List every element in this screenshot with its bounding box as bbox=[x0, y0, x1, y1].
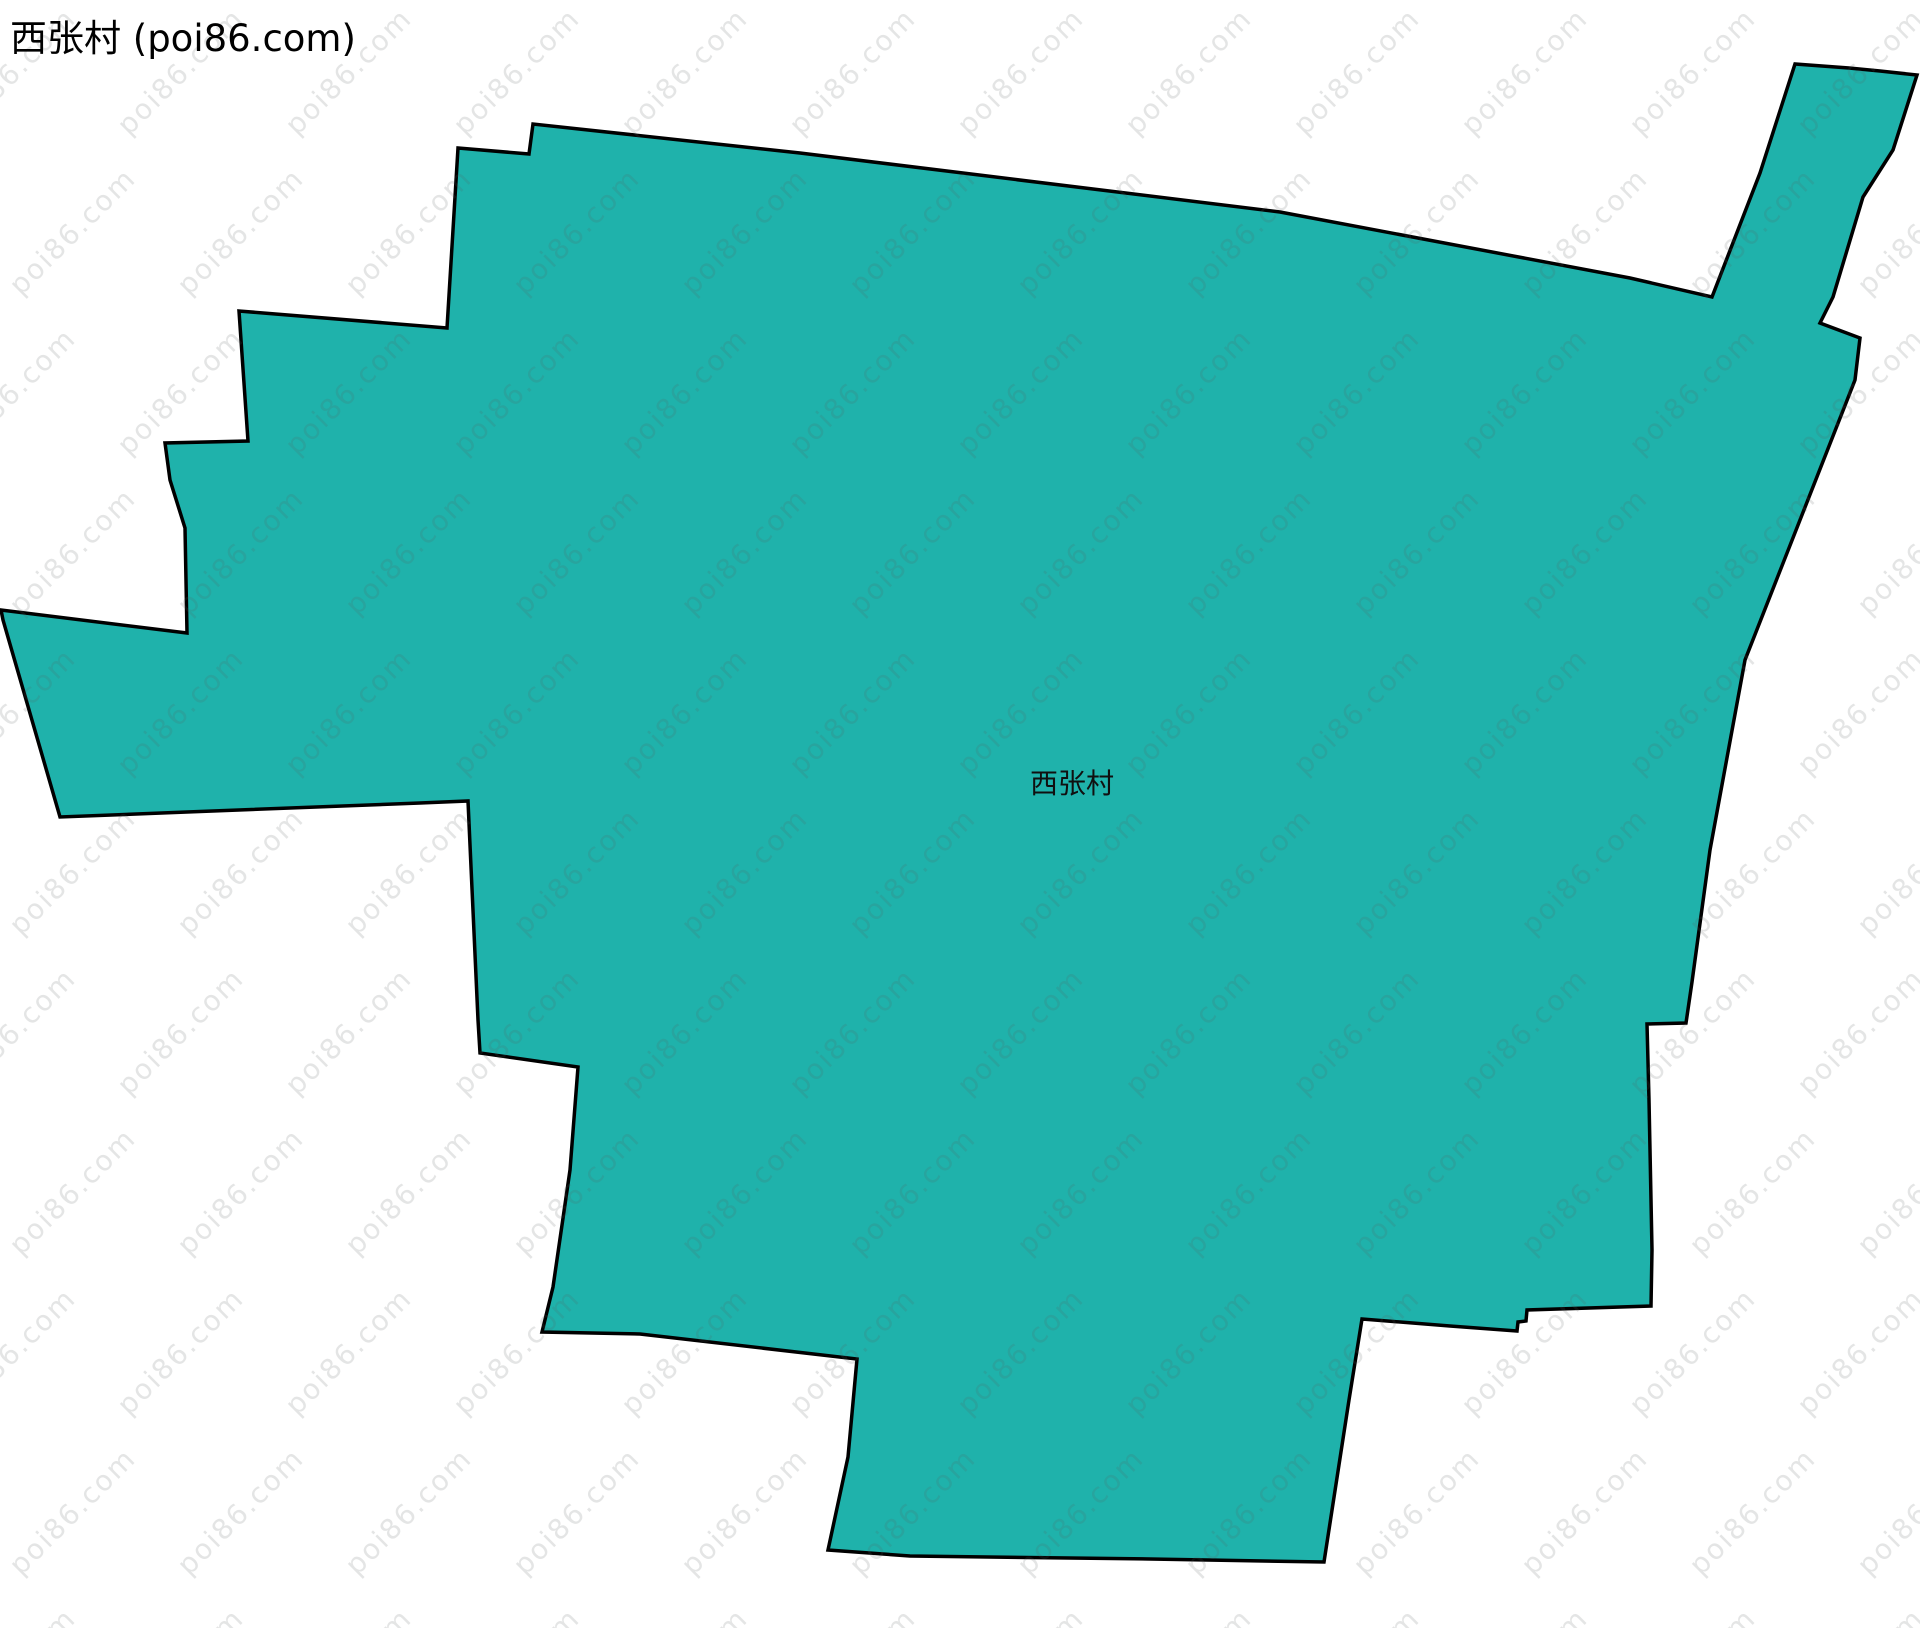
region-polygon bbox=[1, 64, 1917, 1562]
region-label: 西张村 bbox=[1030, 762, 1114, 802]
map-canvas: poi86.compoi86.compoi86.compoi86.compoi8… bbox=[0, 0, 1920, 1628]
region-polygon-svg bbox=[0, 0, 1920, 1628]
page-title: 西张村 (poi86.com) bbox=[10, 8, 356, 62]
